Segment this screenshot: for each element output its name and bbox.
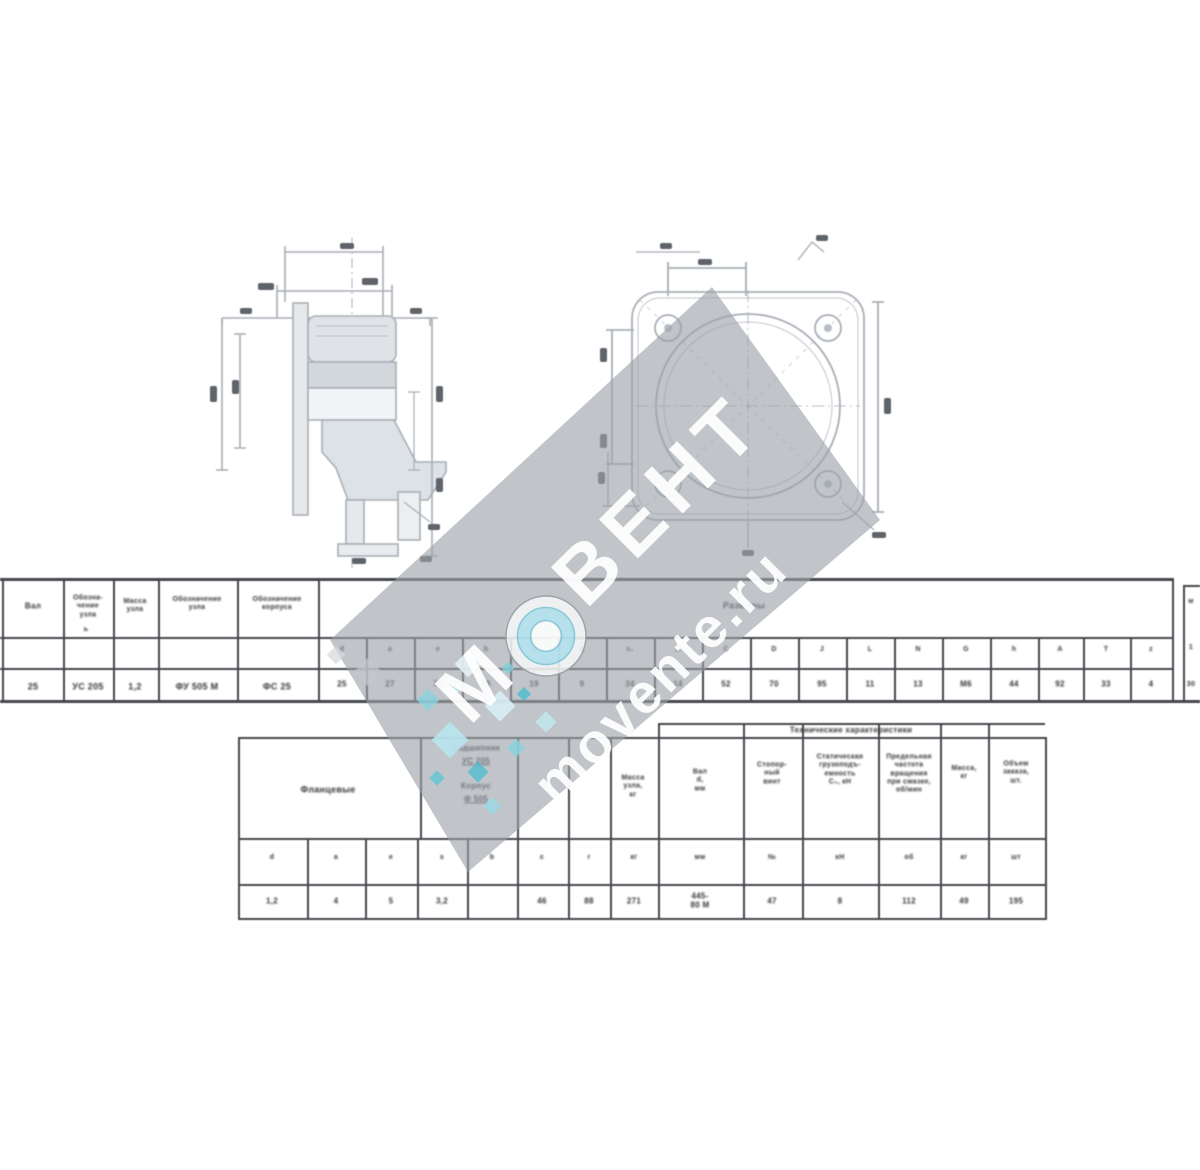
grid-line bbox=[307, 838, 309, 920]
dim-letter: D bbox=[771, 646, 776, 654]
grid-line bbox=[802, 723, 804, 920]
grid-line bbox=[1183, 585, 1185, 702]
grid-line bbox=[113, 578, 115, 702]
bottom-order-header: Объем заказа, шт. bbox=[1003, 761, 1029, 786]
bottom-row-cell: 5 bbox=[389, 896, 394, 905]
dim-letter: d bbox=[340, 646, 345, 654]
scanned-content-layer: Вал Обозна- чение узла Масса узла Обозна… bbox=[0, 0, 1200, 1165]
grid-line bbox=[558, 637, 560, 702]
grid-line bbox=[0, 637, 1172, 639]
main-row-cell: 1,2 bbox=[128, 682, 141, 693]
dim-letter: b bbox=[484, 646, 489, 654]
dim-letter: N bbox=[915, 646, 920, 654]
bottom-housing-value: Ф 505 bbox=[464, 794, 488, 803]
bottom-row-cell: 112 bbox=[902, 896, 916, 905]
main-row-cell: ФС 25 bbox=[263, 682, 291, 693]
grid-line bbox=[1045, 737, 1047, 920]
bottom-sub-mark: c bbox=[540, 854, 544, 862]
bottom-bearing-value: УС 205 bbox=[462, 756, 490, 765]
bottom-sub-mark: e bbox=[389, 854, 393, 862]
bottom-sub-mark: кН bbox=[835, 854, 844, 862]
bottom-flange-label: Фланцевые bbox=[300, 785, 355, 796]
bottom-sub-mark: кг bbox=[960, 854, 967, 862]
grid-line bbox=[702, 637, 704, 702]
main-col-header-unit: Обозна- чение узла bbox=[73, 595, 103, 620]
grid-line bbox=[366, 637, 368, 702]
dim-letter: z bbox=[1149, 646, 1153, 654]
grid-line bbox=[988, 723, 990, 920]
grid-line bbox=[0, 578, 1172, 581]
grid-line bbox=[798, 637, 800, 702]
dim-value: 11 bbox=[865, 679, 874, 688]
bottom-row-cell: 46 bbox=[537, 896, 547, 905]
dim-value: 38 bbox=[481, 679, 491, 688]
bottom-row-cell: 3,2 bbox=[436, 896, 448, 905]
grid-line bbox=[1183, 585, 1200, 587]
main-row-cell: 25 bbox=[28, 682, 39, 693]
dim-value: 70 bbox=[769, 679, 779, 688]
bottom-row-cell: 47 bbox=[767, 896, 777, 905]
dim-value: 70 bbox=[433, 679, 443, 688]
grid-line bbox=[365, 838, 367, 920]
dim-value: 95 bbox=[817, 679, 827, 688]
grid-line bbox=[606, 637, 608, 702]
grid-line bbox=[420, 737, 422, 840]
dim-letter: a bbox=[388, 646, 392, 654]
grid-line bbox=[238, 838, 1045, 840]
main-col-header-mass: Масса узла bbox=[123, 598, 146, 615]
dim-letter: A bbox=[1057, 646, 1062, 654]
grid-line bbox=[2, 578, 4, 702]
dim-value: 19 bbox=[529, 679, 539, 688]
dim-letter: G bbox=[963, 646, 969, 654]
bottom-sub-mark: b bbox=[490, 854, 495, 862]
grid-line bbox=[942, 637, 944, 702]
bottom-row-cell: 8 bbox=[838, 896, 843, 905]
edge-mark: м bbox=[1188, 598, 1193, 606]
main-col-header-shaft: Вал bbox=[25, 601, 41, 610]
dim-value: 27 bbox=[385, 679, 395, 688]
bottom-screw-header: Стопор- ный винт bbox=[757, 762, 787, 787]
grid-line bbox=[238, 737, 1045, 739]
dim-value: 9 bbox=[580, 679, 585, 688]
grid-line bbox=[654, 637, 656, 702]
grid-line bbox=[510, 637, 512, 702]
bottom-sub-mark: s bbox=[440, 854, 444, 862]
bottom-row-cell: 49 bbox=[959, 896, 969, 905]
grid-line bbox=[894, 637, 896, 702]
grid-line bbox=[318, 578, 320, 702]
dim-letter: s₁ bbox=[626, 646, 633, 654]
bottom-sub-mark: a bbox=[334, 854, 338, 862]
grid-line bbox=[414, 637, 416, 702]
bottom-static-header: Статическая грузоподъ- емность С₀, кН bbox=[817, 754, 864, 787]
grid-line bbox=[610, 737, 612, 920]
bottom-mass-header: Масса узла, кг bbox=[621, 775, 644, 800]
dim-letter: T bbox=[1104, 646, 1109, 654]
bottom-sub-mark: r bbox=[587, 854, 590, 862]
bottom-span-header-specs: Технические характеристики bbox=[790, 725, 912, 734]
bottom-row-cell: 195 bbox=[1009, 896, 1023, 905]
bottom-shaft-header: Вал d, мм bbox=[693, 769, 707, 794]
bottom-sub-mark: кг bbox=[630, 854, 637, 862]
dim-value: 92 bbox=[1055, 679, 1065, 688]
bottom-row-cell: 1,2 bbox=[266, 896, 278, 905]
bottom-bearing-label: Подшипник bbox=[452, 743, 500, 752]
grid-line bbox=[750, 637, 752, 702]
dim-letter: C bbox=[723, 646, 728, 654]
grid-line bbox=[238, 884, 1045, 886]
main-row-cell: УС 205 bbox=[72, 682, 103, 693]
grid-line bbox=[846, 637, 848, 702]
dim-value: 14 bbox=[673, 679, 683, 688]
page-stage: Вал Обозна- чение узла Масса узла Обозна… bbox=[0, 0, 1200, 1165]
dim-value: 34 bbox=[625, 679, 635, 688]
main-span-header-dimensions: Размеры bbox=[723, 601, 765, 612]
grid-line bbox=[237, 578, 239, 702]
dim-value: 44 bbox=[1009, 679, 1019, 688]
edge-mark: 1 bbox=[1189, 644, 1193, 652]
grid-line bbox=[0, 700, 1200, 703]
grid-line bbox=[990, 637, 992, 702]
grid-line bbox=[658, 723, 660, 920]
dim-value: 25 bbox=[337, 679, 347, 688]
dim-value: 13 bbox=[913, 679, 923, 688]
dim-letter: h bbox=[1012, 646, 1017, 654]
bottom-housing-label: Корпус bbox=[461, 781, 491, 790]
bottom-sub-mark: № bbox=[768, 854, 776, 862]
dim-value: М6 bbox=[960, 679, 972, 688]
side-section-drawing bbox=[216, 238, 446, 572]
bottom-unit-mass-header: Масса, кг bbox=[951, 765, 976, 782]
grid-line bbox=[1172, 578, 1174, 702]
grid-line bbox=[462, 637, 464, 702]
grid-line bbox=[1038, 637, 1040, 702]
dim-letter: B bbox=[675, 646, 680, 654]
main-col-header-desig: Обозначение узла bbox=[172, 596, 221, 613]
grid-line bbox=[63, 578, 65, 702]
bottom-sub-mark: об bbox=[904, 854, 913, 862]
catalog-page: { "page": {"background": "#ffffff"}, "wa… bbox=[0, 0, 1200, 1165]
dim-letter: c bbox=[532, 646, 536, 654]
bottom-sub-mark: шт bbox=[1011, 854, 1021, 862]
bottom-row-cell: 271 bbox=[627, 896, 641, 905]
dim-letter: L bbox=[868, 646, 873, 654]
grid-line bbox=[417, 838, 419, 920]
technical-drawings bbox=[0, 0, 1200, 600]
grid-line bbox=[238, 918, 1045, 920]
grid-line bbox=[1130, 637, 1132, 702]
grid-line bbox=[940, 723, 942, 920]
main-header-check-mark: ь bbox=[84, 626, 89, 634]
bottom-row-cell: 4 bbox=[334, 896, 339, 905]
dim-letter: g bbox=[580, 646, 585, 654]
bottom-sub-mark: мм bbox=[695, 854, 706, 862]
bottom-row-cell: 445- 80 М bbox=[691, 892, 710, 911]
grid-line bbox=[467, 838, 469, 920]
main-col-header-housing: Обозначение корпуса bbox=[252, 596, 301, 613]
bottom-speed-header: Предельная частота вращения при смазке, … bbox=[886, 753, 932, 794]
main-row-cell: ФУ 505 М bbox=[176, 682, 219, 693]
grid-line bbox=[568, 737, 570, 920]
grid-line bbox=[517, 737, 519, 920]
dim-value: 33 bbox=[1101, 679, 1111, 688]
dim-value: 4 bbox=[1149, 679, 1154, 688]
dim-value: 52 bbox=[721, 679, 731, 688]
grid-line bbox=[743, 723, 745, 920]
grid-line bbox=[158, 578, 160, 702]
grid-line bbox=[878, 723, 880, 920]
grid-line bbox=[238, 737, 240, 920]
dim-letter: e bbox=[436, 646, 440, 654]
flange-front-drawing bbox=[602, 242, 884, 548]
grid-line bbox=[1083, 637, 1085, 702]
dim-letter: J bbox=[820, 646, 824, 654]
bottom-sub-mark: d bbox=[270, 854, 275, 862]
grid-line bbox=[0, 668, 1172, 670]
bottom-row-cell: 88 bbox=[584, 896, 594, 905]
edge-mark: 30 bbox=[1187, 681, 1195, 689]
